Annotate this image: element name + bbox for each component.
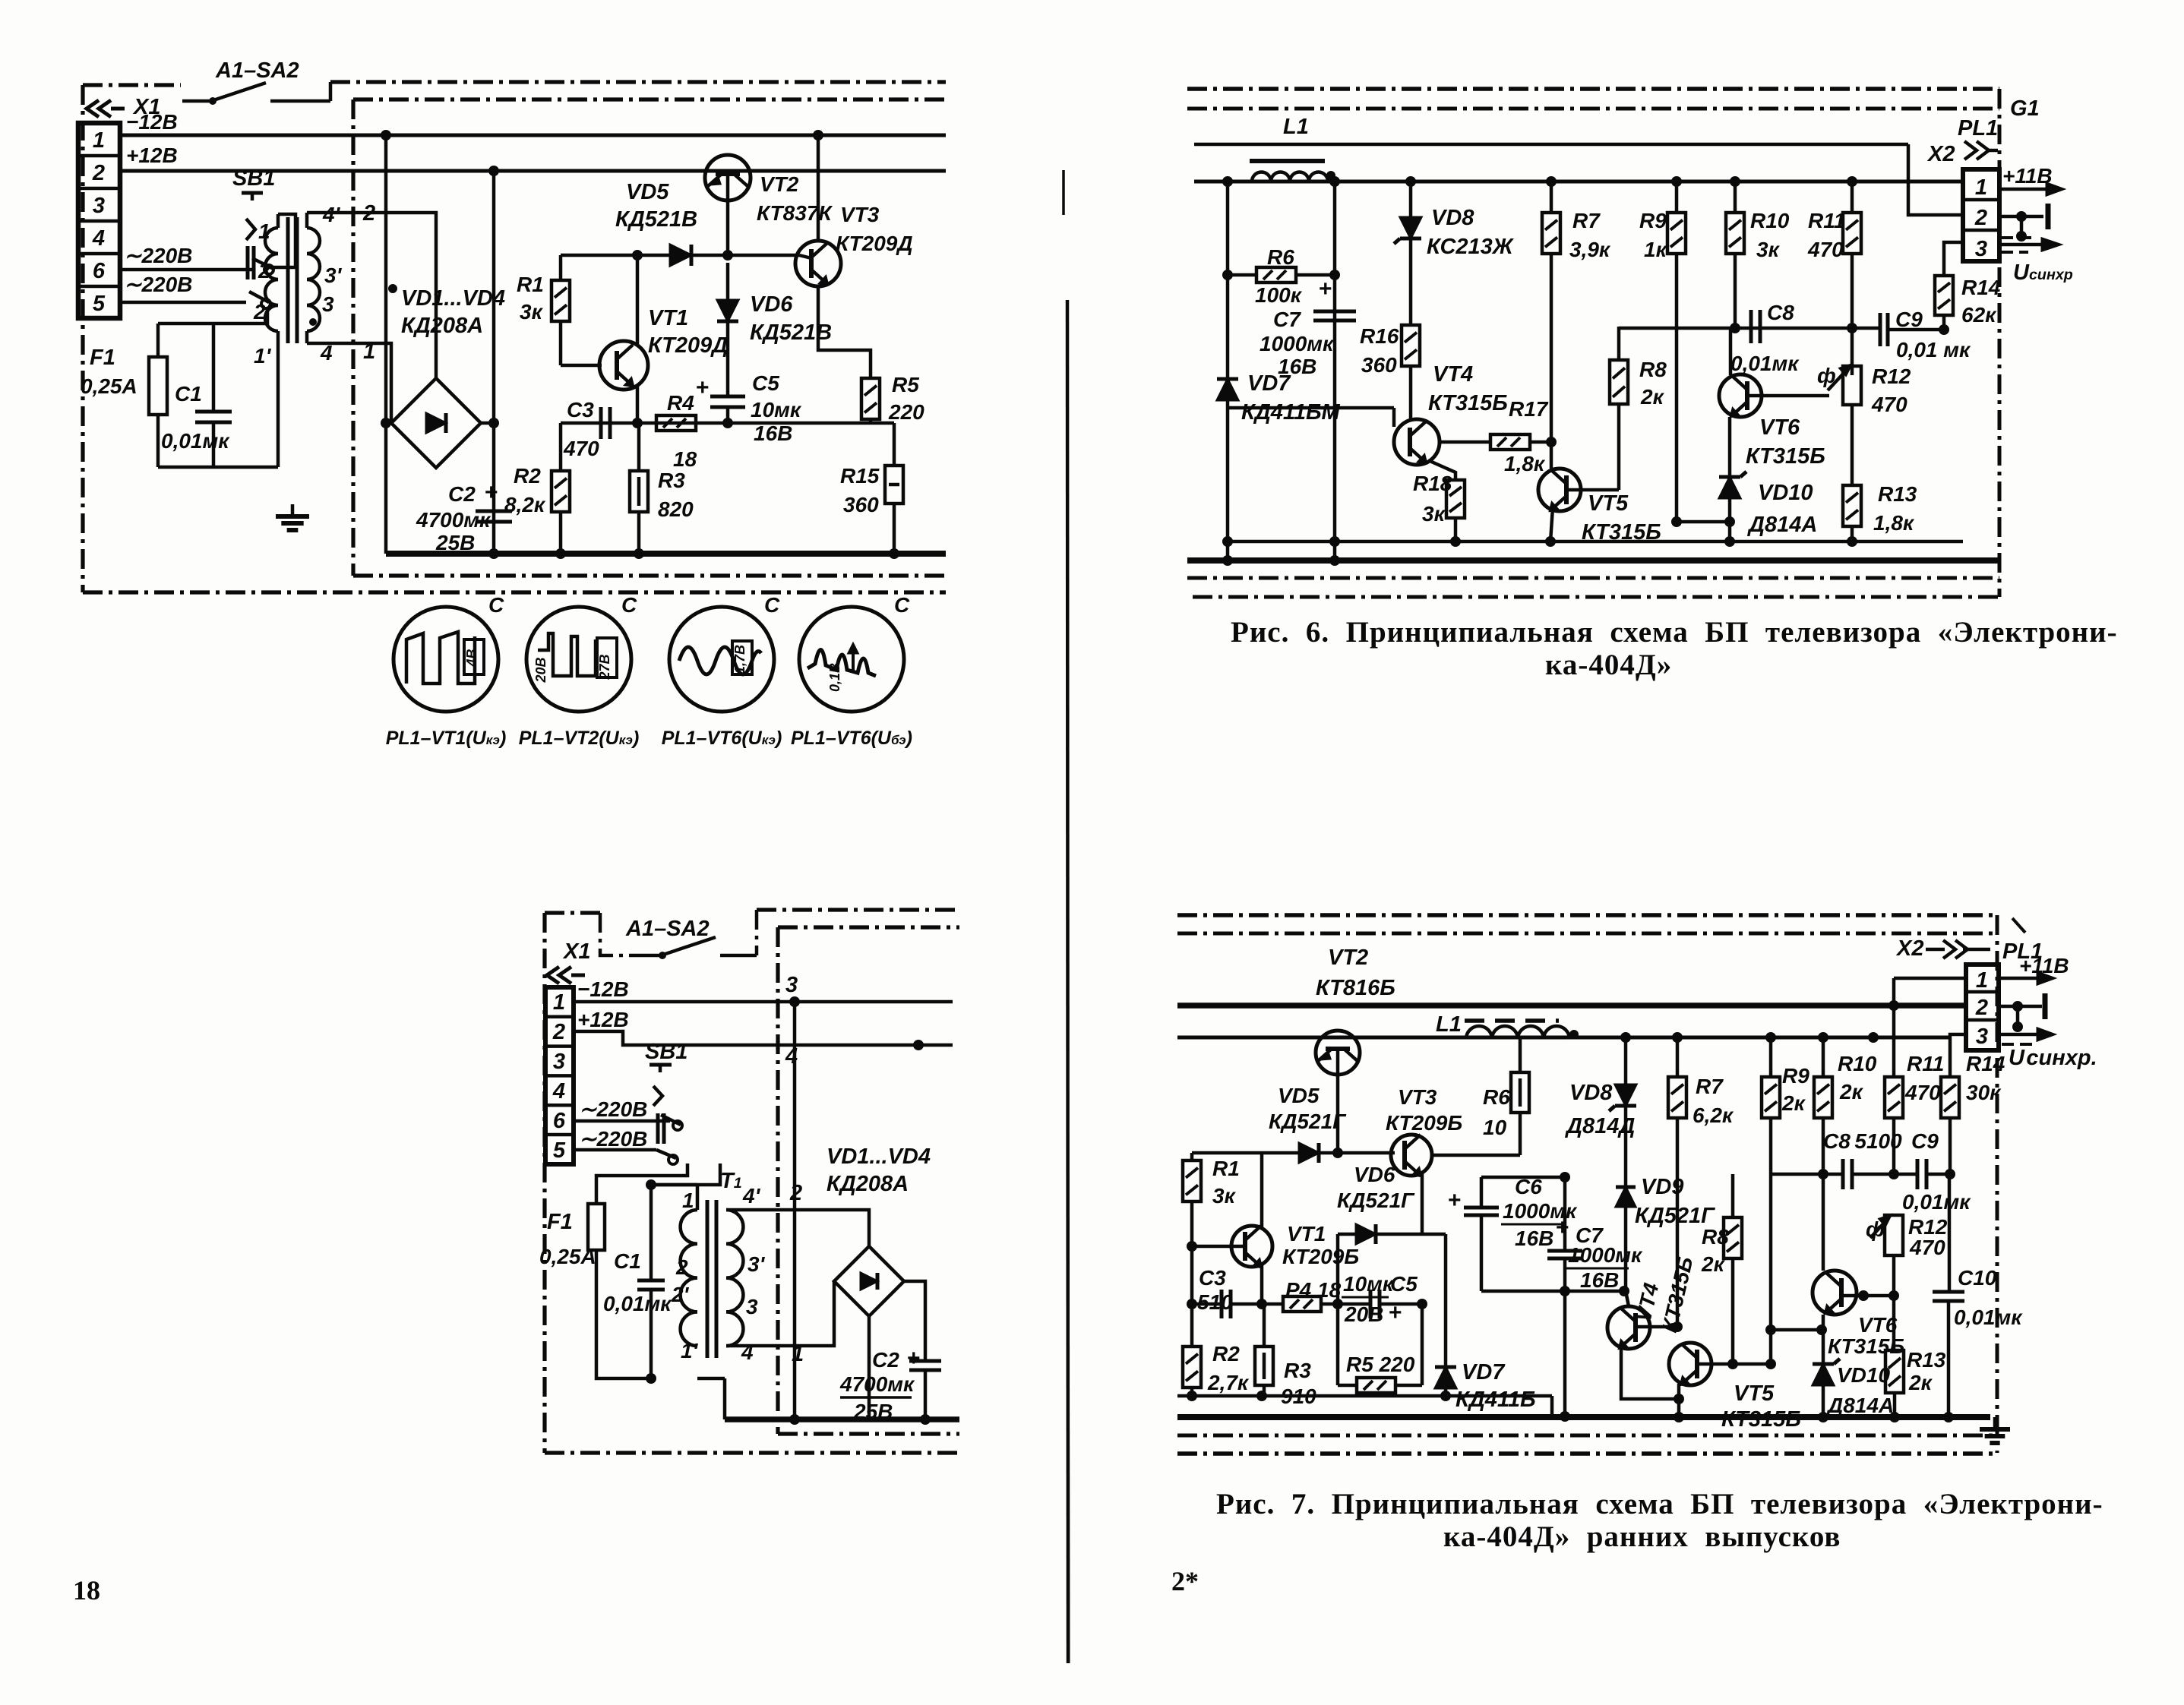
- svg-text:С5: С5: [1390, 1272, 1418, 1296]
- svg-text:VD5: VD5: [1278, 1084, 1320, 1107]
- svg-text:R3: R3: [1284, 1359, 1311, 1382]
- svg-text:10: 10: [1483, 1116, 1507, 1139]
- svg-text:+: +: [1448, 1188, 1462, 1213]
- svg-text:R15: R15: [840, 464, 880, 488]
- svg-text:∼220В: ∼220В: [124, 273, 192, 296]
- svg-text:КД208А: КД208А: [827, 1172, 909, 1196]
- svg-text:−12В: −12В: [577, 977, 629, 1001]
- svg-text:КД411БМ: КД411БМ: [1241, 400, 1341, 425]
- svg-text:C2: C2: [872, 1348, 899, 1372]
- svg-text:R13: R13: [1907, 1348, 1946, 1372]
- svg-text:3': 3': [324, 264, 343, 287]
- svg-text:2: 2: [552, 1020, 565, 1044]
- svg-text:1000мк: 1000мк: [1260, 332, 1335, 355]
- svg-text:VT1: VT1: [1287, 1222, 1326, 1246]
- svg-text:Д814А: Д814А: [1826, 1394, 1894, 1417]
- svg-text:0,01мк: 0,01мк: [1730, 352, 1800, 375]
- svg-text:1': 1': [254, 344, 272, 368]
- svg-text:C2: C2: [448, 482, 476, 506]
- svg-text:0,01мк: 0,01мк: [1902, 1190, 1971, 1214]
- svg-text:Рис. 7. Принципиальная схем: Рис. 7. Принципиальная схема БП телевизо…: [1216, 1488, 2103, 1520]
- svg-text:3: 3: [746, 1295, 758, 1318]
- svg-text:VT4: VT4: [1433, 362, 1473, 387]
- svg-text:3: 3: [93, 194, 105, 218]
- svg-text:8,2к: 8,2к: [504, 493, 546, 516]
- svg-text:1: 1: [93, 128, 105, 153]
- svg-text:КТ209Д: КТ209Д: [836, 232, 913, 255]
- svg-text:R6: R6: [1483, 1085, 1510, 1109]
- svg-text:X2: X2: [1926, 142, 1955, 166]
- svg-text:0,01мк: 0,01мк: [1954, 1306, 2023, 1329]
- svg-text:SB1: SB1: [232, 166, 275, 191]
- svg-text:3к: 3к: [1422, 502, 1446, 526]
- svg-text:R9: R9: [1639, 209, 1667, 232]
- svg-text:3к: 3к: [1756, 238, 1781, 261]
- svg-text:VT6: VT6: [1858, 1313, 1898, 1337]
- svg-text:КТ315Б: КТ315Б: [1746, 444, 1825, 469]
- svg-text:10мк: 10мк: [751, 398, 802, 422]
- svg-text:Рис. 6. Принципиальная схем: Рис. 6. Принципиальная схема БП телевизо…: [1231, 616, 2118, 649]
- svg-text:C: C: [621, 593, 637, 617]
- svg-text:820: 820: [658, 497, 694, 521]
- svg-text:КС213Ж: КС213Ж: [1427, 235, 1515, 259]
- svg-text:220: 220: [888, 400, 924, 424]
- svg-text:2к: 2к: [1908, 1371, 1933, 1394]
- svg-text:КД521В: КД521В: [615, 207, 697, 232]
- svg-text:+: +: [1556, 1215, 1569, 1240]
- svg-text:+: +: [485, 480, 498, 505]
- svg-text:R17: R17: [1509, 397, 1549, 421]
- svg-text:3': 3': [747, 1252, 766, 1276]
- svg-text:X1: X1: [562, 939, 590, 964]
- svg-text:C10: C10: [1958, 1266, 1997, 1290]
- svg-text:L1: L1: [1283, 115, 1309, 139]
- svg-text:4: 4: [92, 226, 105, 251]
- svg-text:R4: R4: [667, 391, 694, 415]
- svg-text:2к: 2к: [1839, 1080, 1864, 1104]
- svg-text:360: 360: [1361, 353, 1397, 377]
- svg-text:3: 3: [1975, 237, 1987, 261]
- svg-text:VT6: VT6: [1759, 415, 1800, 440]
- svg-text:VD6: VD6: [750, 292, 793, 317]
- svg-text:3,9к: 3,9к: [1569, 238, 1611, 261]
- svg-text:VD1...VD4: VD1...VD4: [401, 286, 505, 311]
- svg-text:6,2к: 6,2к: [1693, 1104, 1734, 1127]
- svg-text:+: +: [696, 375, 710, 400]
- svg-text:R11: R11: [1808, 209, 1845, 232]
- svg-text:КТ816Б: КТ816Б: [1316, 976, 1395, 1000]
- svg-text:R8: R8: [1639, 358, 1667, 381]
- svg-text:U синхр.: U синхр.: [2009, 1046, 2097, 1070]
- svg-text:3: 3: [1976, 1025, 1988, 1049]
- svg-text:КТ837К: КТ837К: [757, 201, 833, 225]
- svg-text:2к: 2к: [1640, 385, 1665, 409]
- svg-text:VT2: VT2: [1328, 946, 1368, 970]
- svg-text:R14: R14: [1961, 276, 2001, 299]
- svg-text:VD8: VD8: [1431, 206, 1474, 230]
- svg-text:A1–SA2: A1–SA2: [625, 917, 710, 941]
- svg-text:R1: R1: [1212, 1157, 1240, 1180]
- svg-text:2': 2': [253, 300, 272, 324]
- svg-text:2: 2: [1974, 206, 1987, 230]
- svg-text:ф: ф: [1817, 364, 1836, 387]
- svg-text:КД411Б: КД411Б: [1455, 1388, 1536, 1412]
- svg-text:C: C: [764, 593, 780, 617]
- svg-text:VT5: VT5: [1734, 1381, 1775, 1406]
- svg-text:C: C: [894, 593, 910, 617]
- svg-text:1,7В: 1,7В: [732, 645, 747, 674]
- svg-text:R11: R11: [1907, 1052, 1944, 1075]
- svg-text:4700мк: 4700мк: [839, 1372, 915, 1396]
- svg-text:1000мк: 1000мк: [1568, 1243, 1643, 1267]
- svg-text:5: 5: [93, 292, 106, 316]
- svg-text:R10: R10: [1750, 209, 1790, 232]
- svg-text:360: 360: [843, 493, 879, 516]
- svg-text:VD7: VD7: [1462, 1360, 1506, 1385]
- svg-text:62к: 62к: [1961, 303, 1997, 327]
- svg-text:+11В: +11В: [2002, 164, 2053, 188]
- svg-text:R13: R13: [1878, 482, 1917, 506]
- svg-text:1: 1: [553, 990, 565, 1015]
- svg-text:R5: R5: [892, 373, 919, 396]
- svg-text:+: +: [907, 1346, 921, 1371]
- svg-text:4: 4: [741, 1340, 754, 1364]
- svg-text:510: 510: [1197, 1290, 1233, 1314]
- svg-text:VT3: VT3: [840, 203, 880, 226]
- svg-text:C9: C9: [1895, 308, 1923, 331]
- svg-text:R7: R7: [1696, 1075, 1724, 1098]
- svg-text:27В: 27В: [597, 654, 612, 680]
- svg-text:20В: 20В: [533, 657, 548, 683]
- svg-text:6: 6: [553, 1109, 566, 1133]
- svg-text:2: 2: [92, 161, 105, 185]
- svg-text:3: 3: [322, 292, 334, 316]
- svg-text:Д814А: Д814А: [1746, 513, 1817, 537]
- svg-text:+12В: +12В: [126, 144, 178, 167]
- svg-text:2*: 2*: [1171, 1566, 1199, 1596]
- svg-text:6: 6: [93, 259, 106, 283]
- svg-text:R2: R2: [514, 464, 541, 488]
- svg-text:R9: R9: [1782, 1064, 1809, 1088]
- svg-text:3: 3: [553, 1050, 565, 1074]
- svg-text:16В: 16В: [1278, 355, 1316, 378]
- svg-text:2,7к: 2,7к: [1207, 1371, 1250, 1394]
- svg-text:4': 4': [322, 203, 341, 226]
- svg-text:VD6: VD6: [1354, 1163, 1395, 1186]
- svg-text:R12: R12: [1872, 365, 1911, 388]
- svg-text:100к: 100к: [1255, 283, 1303, 307]
- svg-text:VD8: VD8: [1569, 1081, 1613, 1105]
- svg-text:PL1: PL1: [1958, 116, 1998, 141]
- svg-text:1: 1: [258, 219, 270, 243]
- svg-text:3к: 3к: [1212, 1184, 1237, 1208]
- svg-text:R7: R7: [1572, 209, 1601, 232]
- svg-text:0,01мк: 0,01мк: [603, 1292, 672, 1315]
- svg-text:КД208А: КД208А: [401, 314, 483, 338]
- svg-text:−12В: −12В: [126, 110, 178, 134]
- svg-text:4: 4: [552, 1079, 565, 1104]
- svg-text:R2: R2: [1212, 1342, 1240, 1366]
- svg-text:КТ209Б: КТ209Б: [1386, 1111, 1462, 1135]
- svg-text:16В: 16В: [1580, 1268, 1619, 1292]
- svg-text:1: 1: [682, 1189, 694, 1212]
- svg-text:VD5: VD5: [626, 180, 669, 204]
- svg-text:КТ209Б: КТ209Б: [1282, 1245, 1359, 1268]
- svg-text:0,01мк: 0,01мк: [161, 429, 230, 453]
- svg-text:0,1В: 0,1В: [827, 663, 842, 692]
- svg-text:VD1...VD4: VD1...VD4: [827, 1145, 931, 1169]
- svg-text:C3: C3: [567, 398, 594, 422]
- svg-text:1к: 1к: [1644, 238, 1668, 261]
- svg-text:G1: G1: [2010, 96, 2040, 121]
- svg-text:R6: R6: [1267, 245, 1294, 269]
- svg-text:470: 470: [1807, 238, 1844, 261]
- svg-text:VT1: VT1: [648, 306, 688, 330]
- svg-text:R16: R16: [1360, 324, 1399, 348]
- svg-text:470: 470: [563, 437, 599, 460]
- svg-text:0,01 мк: 0,01 мк: [1896, 338, 1971, 362]
- svg-text:F1: F1: [90, 346, 115, 370]
- svg-text:VD10: VD10: [1758, 481, 1813, 505]
- svg-text:470: 470: [1871, 393, 1907, 416]
- svg-text:+12В: +12В: [577, 1008, 629, 1031]
- svg-text:C9: C9: [1911, 1129, 1939, 1153]
- svg-text:C: C: [488, 593, 504, 617]
- svg-text:КТ315Б: КТ315Б: [1428, 391, 1508, 415]
- svg-text:VD10: VD10: [1837, 1363, 1890, 1387]
- svg-text:R14: R14: [1966, 1052, 2005, 1075]
- svg-text:C1: C1: [614, 1249, 641, 1273]
- svg-text:5: 5: [553, 1138, 566, 1163]
- svg-text:4В: 4В: [464, 649, 479, 667]
- svg-text:3: 3: [785, 973, 798, 997]
- svg-text:0,25А: 0,25А: [81, 374, 137, 398]
- svg-text:1: 1: [1975, 175, 1987, 200]
- svg-text:2к: 2к: [1701, 1252, 1726, 1276]
- svg-text:1,8к: 1,8к: [1504, 452, 1546, 475]
- svg-text:SB1: SB1: [645, 1040, 687, 1064]
- svg-text:C7: C7: [1273, 308, 1301, 331]
- svg-text:КТ209Д: КТ209Д: [648, 333, 728, 358]
- svg-text:С8 5100: С8 5100: [1823, 1129, 1902, 1153]
- svg-text:C8: C8: [1767, 301, 1794, 324]
- svg-text:ф: ф: [1866, 1217, 1885, 1241]
- svg-text:18: 18: [673, 447, 697, 471]
- svg-text:∼220В: ∼220В: [124, 244, 192, 267]
- svg-text:30к: 30к: [1966, 1081, 2002, 1104]
- svg-text:Р4 18: Р4 18: [1285, 1278, 1342, 1302]
- svg-text:∼220В: ∼220В: [579, 1097, 647, 1121]
- svg-text:L1: L1: [1436, 1012, 1462, 1037]
- svg-text:R5 220: R5 220: [1346, 1353, 1415, 1376]
- svg-text:C1: C1: [175, 382, 202, 406]
- svg-text:18: 18: [73, 1575, 100, 1606]
- svg-text:16В: 16В: [754, 422, 792, 445]
- svg-text:1,8к: 1,8к: [1873, 511, 1915, 535]
- svg-text:R10: R10: [1838, 1052, 1877, 1075]
- svg-text:КД521Г: КД521Г: [1269, 1110, 1347, 1133]
- svg-text:R1: R1: [517, 273, 544, 296]
- svg-text:ка-404Д» ранних выпусков: ка-404Д» ранних выпусков: [1443, 1520, 1841, 1553]
- svg-text:2: 2: [1975, 996, 1988, 1020]
- svg-text:2: 2: [258, 259, 270, 283]
- svg-text:VT3: VT3: [1398, 1085, 1437, 1109]
- svg-text:ка-404Д»: ка-404Д»: [1545, 649, 1672, 681]
- svg-text:4': 4': [742, 1184, 761, 1208]
- svg-text:3к: 3к: [520, 300, 544, 324]
- svg-text:КД521Г: КД521Г: [1337, 1189, 1415, 1212]
- svg-text:470: 470: [1909, 1236, 1945, 1259]
- svg-text:2к: 2к: [1781, 1091, 1806, 1115]
- svg-text:КТ315Б: КТ315Б: [1828, 1334, 1904, 1358]
- svg-text:16В: 16В: [1515, 1227, 1553, 1250]
- svg-text:F1: F1: [547, 1210, 573, 1234]
- svg-text:VT5: VT5: [1588, 491, 1629, 516]
- svg-text:1: 1: [1976, 968, 1988, 993]
- svg-text:A1–SA2: A1–SA2: [215, 58, 299, 83]
- svg-text:C3: C3: [1199, 1266, 1226, 1290]
- svg-text:∼220В: ∼220В: [579, 1127, 647, 1151]
- svg-text:470: 470: [1904, 1081, 1941, 1104]
- svg-text:R3: R3: [658, 469, 685, 492]
- svg-text:VT2: VT2: [760, 172, 799, 196]
- svg-text:+: +: [1319, 276, 1332, 302]
- svg-text:C5: C5: [752, 371, 779, 395]
- svg-text:X2: X2: [1895, 936, 1923, 961]
